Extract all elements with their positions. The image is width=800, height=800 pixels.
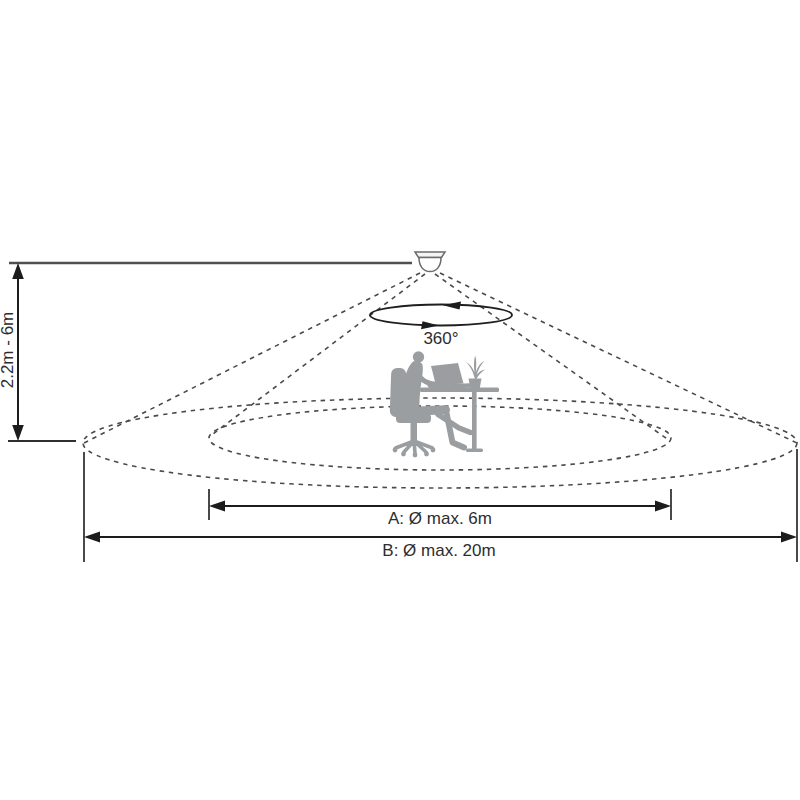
arrow-left-icon xyxy=(84,531,100,542)
detection-cone-line-outer-right xyxy=(440,273,797,443)
dimension-a: A: Ø max. 6m xyxy=(209,489,671,528)
ceiling-sensor-icon xyxy=(415,252,445,272)
person-head xyxy=(413,351,424,362)
diagram-canvas: 2.2m - 6m 360° xyxy=(0,0,800,800)
arrow-up-icon xyxy=(12,263,24,279)
detection-cone-line-inner-right xyxy=(435,274,670,441)
desk-leg xyxy=(472,392,477,449)
laptop-icon xyxy=(427,363,473,389)
rotation-arrowhead-right-icon xyxy=(421,321,439,329)
arrow-right-icon xyxy=(781,531,797,542)
detection-cone-line-outer-left xyxy=(84,273,420,443)
rotation-angle-label: 360° xyxy=(423,329,458,348)
height-dimension-label: 2.2m - 6m xyxy=(0,312,17,389)
chair-caster xyxy=(401,452,406,457)
person-at-desk-silhouette xyxy=(390,351,499,457)
arrow-left-icon xyxy=(209,500,225,511)
sensor-mounting-plate xyxy=(415,252,445,258)
height-dimension: 2.2m - 6m xyxy=(0,263,24,441)
arrow-down-icon xyxy=(12,425,24,441)
chair-column xyxy=(411,422,418,441)
arrow-right-icon xyxy=(655,500,671,511)
rotation-ellipse xyxy=(370,305,512,326)
plant-leaves xyxy=(466,356,486,380)
person-crossed-leg xyxy=(438,415,471,433)
desk-foot xyxy=(466,449,483,453)
sensor-dome xyxy=(419,258,441,272)
chair-caster xyxy=(424,452,429,457)
chair-caster xyxy=(413,453,418,458)
chair-base xyxy=(396,441,433,453)
dimension-a-label: A: Ø max. 6m xyxy=(388,509,492,528)
rotation-indicator: 360° xyxy=(370,302,512,348)
plant-pot xyxy=(469,379,482,389)
detection-range-diagram: 2.2m - 6m 360° xyxy=(0,0,800,800)
rotation-arrowhead-left-icon xyxy=(443,302,461,310)
person-thigh xyxy=(408,410,446,412)
dimension-b-label: B: Ø max. 20m xyxy=(382,541,495,560)
plant-icon xyxy=(466,356,486,389)
laptop-screen xyxy=(431,363,464,386)
chair-caster xyxy=(431,448,436,453)
chair-caster xyxy=(393,448,398,453)
